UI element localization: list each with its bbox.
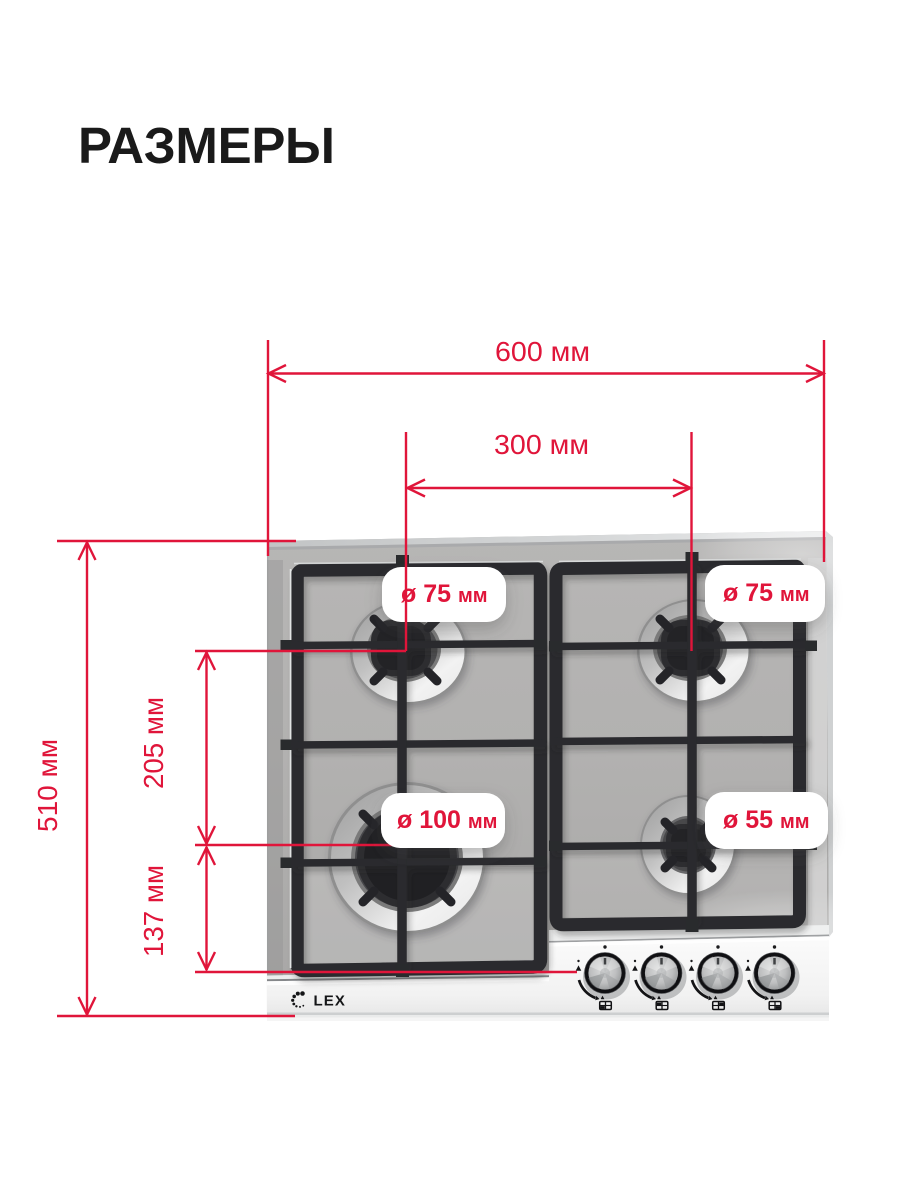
svg-text:ø 55 мм: ø 55 мм bbox=[723, 806, 810, 834]
svg-text:LEX: LEX bbox=[314, 993, 346, 1010]
svg-text:ø 100 мм: ø 100 мм bbox=[397, 806, 497, 834]
svg-text:137 мм: 137 мм bbox=[138, 865, 169, 957]
svg-text:ø 75 мм: ø 75 мм bbox=[723, 579, 810, 607]
svg-text:510 мм: 510 мм bbox=[32, 739, 63, 832]
svg-text:ø 75 мм: ø 75 мм bbox=[401, 580, 488, 608]
svg-text:300 мм: 300 мм bbox=[494, 429, 589, 460]
svg-text:205 мм: 205 мм bbox=[138, 697, 169, 789]
svg-text:600 мм: 600 мм bbox=[495, 336, 590, 367]
